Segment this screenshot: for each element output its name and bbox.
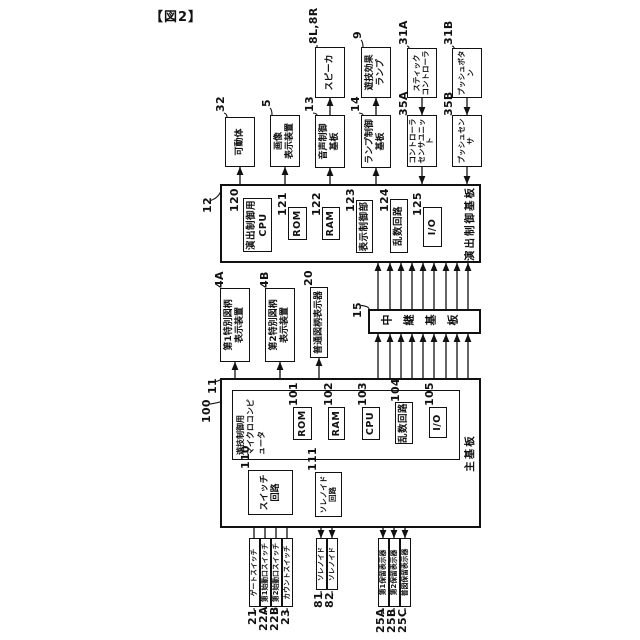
display-control-123-box: 表示制御部: [356, 200, 373, 253]
normal-display-label-line: 普通図柄表示器: [314, 291, 325, 354]
controller-sensor-unit-box: コントローラセンサユニット: [407, 115, 437, 167]
normal-hold-display-box: 普図保留表示器: [400, 538, 411, 607]
effect-cpu-120-ref-numeral: 120: [228, 188, 241, 212]
solenoid-81-box: ソレノイド: [316, 538, 327, 590]
sound-control-board-label-line: 基板: [330, 133, 341, 151]
sound-control-board-ref-numeral: 13: [303, 96, 316, 112]
random-circuit-124-box: 乱数回路: [390, 199, 408, 253]
random-circuit-124-ref-numeral: 124: [378, 188, 391, 212]
io-105-ref-numeral: 105: [423, 382, 436, 406]
special-display-2-label-line: 第2特別図柄: [269, 299, 280, 350]
io-125-label-line: I/O: [427, 219, 438, 236]
ram-102-ref-numeral: 102: [322, 382, 335, 406]
display-control-123-ref-numeral: 123: [344, 188, 357, 212]
relay-board-box: 中継基板: [368, 309, 481, 334]
special-display-1-label-line: 第1特別図柄: [224, 299, 235, 350]
movable-body-box: 可動体: [225, 117, 255, 167]
movable-body-label-line: 可動体: [235, 129, 246, 156]
io-105-label-line: I/O: [432, 414, 443, 431]
game-effect-lamp-label-line: 遊技効果: [365, 55, 376, 91]
special-display-2-label-line: 表示装置: [280, 307, 291, 343]
ram-122-label-line: RAM: [325, 211, 336, 237]
rom-101-box: ROM: [293, 407, 312, 440]
game-effect-lamp-box: 遊技効果ランプ: [361, 47, 391, 98]
effect-control-board-label: 演出制御基板: [464, 186, 476, 261]
hold-display-1-label-line: 第1保留表示器: [379, 550, 387, 596]
ram-102-label-line: RAM: [331, 411, 342, 437]
special-display-1-box: 第1特別図柄表示装置: [220, 288, 250, 362]
solenoid-81-label-line: ソレノイド: [317, 547, 325, 581]
switch-circuit-110-box: スイッチ回路: [248, 470, 293, 515]
count-switch-label-line: カウントスイッチ: [283, 545, 291, 599]
ram-102-box: RAM: [328, 407, 345, 440]
sound-control-board-box: 音声制御基板: [315, 115, 345, 168]
io-125-box: I/O: [423, 207, 442, 247]
solenoid-circuit-111-box: ソレノイド回路: [315, 472, 342, 517]
push-sensor-label-line: プッシュセンサ: [458, 116, 476, 166]
random-circuit-124-label-line: 乱数回路: [393, 206, 404, 246]
rom-121-ref-numeral: 121: [276, 192, 289, 216]
main-board-ref-numeral: 11: [206, 378, 219, 394]
effect-control-board-ref-numeral: 12: [201, 197, 214, 213]
rotated-diagram-canvas: 主基板11演出制御基板12中継基板15遊技制御用マイクロコンピュータ100ROM…: [0, 0, 640, 640]
sound-control-board-label-line: 音声制御: [319, 124, 330, 160]
ram-122-box: RAM: [322, 207, 340, 240]
cpu-103-label-line: CPU: [365, 412, 376, 435]
game-control-micro-ref-numeral: 100: [200, 399, 213, 423]
io-105-box: I/O: [429, 407, 447, 438]
normal-display-box: 普通図柄表示器: [310, 287, 328, 358]
image-display-device-box: 画像表示装置: [270, 115, 300, 167]
controller-sensor-unit-label-line: センサユニット: [418, 116, 436, 166]
push-button-ref-numeral: 31B: [442, 20, 455, 45]
rom-121-label-line: ROM: [292, 210, 303, 236]
rom-101-label-line: ROM: [297, 410, 308, 436]
relay-board-label: 中継基板: [381, 315, 469, 328]
image-display-device-label-line: 画像: [274, 132, 285, 150]
rom-101-ref-numeral: 101: [287, 382, 300, 406]
lamp-control-board-ref-numeral: 14: [349, 96, 362, 112]
gate-switch-box: ゲートスイッチ: [249, 538, 260, 607]
start-switch-1-box: 第1始動口スイッチ: [260, 538, 271, 607]
effect-cpu-120-label-line: 演出制御用: [246, 200, 257, 250]
random-circuit-104-label-line: 乱数回路: [398, 403, 409, 443]
normal-hold-display-label-line: 普図保留表示器: [401, 549, 409, 597]
rom-121-box: ROM: [288, 207, 307, 240]
movable-body-ref-numeral: 32: [214, 96, 227, 112]
hold-display-2-label-line: 第2保留表示器: [390, 550, 398, 596]
switch-circuit-110-ref-numeral: 110: [239, 445, 252, 469]
display-control-123-label-line: 表示制御部: [359, 202, 370, 252]
patent-figure-page: 【図2】 主基板11演出制御基板12中継基板15遊技制御用マイクロコンピュータ1…: [0, 0, 640, 640]
count-switch-ref-numeral: 23: [279, 609, 292, 625]
random-circuit-104-ref-numeral: 104: [389, 378, 402, 402]
speaker-ref-numeral: 8L,8R: [307, 8, 320, 44]
game-effect-lamp-ref-numeral: 9: [351, 31, 364, 39]
start-switch-2-box: 第2始動口スイッチ: [271, 538, 282, 607]
speaker-box: スピーカ: [315, 47, 345, 98]
lamp-control-board-label-line: ランプ制御: [365, 119, 376, 164]
hold-display-1-box: 第1保留表示器: [378, 538, 389, 607]
relay-board-ref-numeral: 15: [351, 302, 364, 318]
game-effect-lamp-label-line: ランプ: [376, 59, 387, 86]
ref-leader-line: [361, 40, 363, 47]
effect-cpu-120-label-line: CPU: [258, 213, 269, 236]
switch-circuit-110-label-line: スイッチ: [260, 475, 271, 511]
solenoid-82-label-line: ソレノイド: [328, 547, 336, 581]
push-button-label-line: プッシュボタン: [458, 49, 476, 97]
lamp-control-board-label-line: 基板: [376, 133, 387, 151]
start-switch-1-label-line: 第1始動口スイッチ: [261, 543, 269, 602]
solenoid-82-box: ソレノイド: [327, 538, 338, 590]
solenoid-circuit-111-ref-numeral: 111: [306, 447, 319, 471]
count-switch-box: カウントスイッチ: [282, 538, 293, 607]
ram-122-ref-numeral: 122: [310, 192, 323, 216]
io-125-ref-numeral: 125: [411, 192, 424, 216]
hold-display-2-box: 第2保留表示器: [389, 538, 400, 607]
solenoid-82-ref-numeral: 82: [323, 592, 336, 608]
normal-hold-display-ref-numeral: 25C: [396, 609, 409, 633]
image-display-device-label-line: 表示装置: [285, 123, 296, 159]
gate-switch-label-line: ゲートスイッチ: [250, 549, 258, 597]
cpu-103-box: CPU: [362, 407, 380, 440]
effect-cpu-120-box: 演出制御用CPU: [243, 198, 272, 252]
speaker-label-line: スピーカ: [325, 55, 336, 91]
push-button-box: プッシュボタン: [452, 48, 482, 98]
start-switch-2-label-line: 第2始動口スイッチ: [272, 543, 280, 602]
special-display-2-ref-numeral: 4B: [258, 271, 271, 288]
cpu-103-ref-numeral: 103: [356, 382, 369, 406]
lamp-control-board-box: ランプ制御基板: [361, 115, 391, 168]
push-sensor-box: プッシュセンサ: [452, 115, 482, 167]
stick-controller-ref-numeral: 31A: [397, 20, 410, 45]
solenoid-circuit-111-label-line: 回路: [329, 487, 338, 502]
ref-leader-line: [270, 108, 272, 115]
normal-display-ref-numeral: 20: [302, 270, 315, 286]
special-display-1-label-line: 表示装置: [235, 307, 246, 343]
special-display-1-ref-numeral: 4A: [213, 271, 226, 288]
random-circuit-104-box: 乱数回路: [395, 402, 413, 444]
stick-controller-box: スティックコントローラ: [407, 48, 437, 98]
special-display-2-box: 第2特別図柄表示装置: [265, 288, 295, 362]
switch-circuit-110-label-line: 回路: [271, 484, 282, 502]
main-board-label: 主基板: [464, 380, 476, 526]
image-display-device-ref-numeral: 5: [260, 99, 273, 107]
stick-controller-label-line: コントローラ: [422, 51, 431, 96]
